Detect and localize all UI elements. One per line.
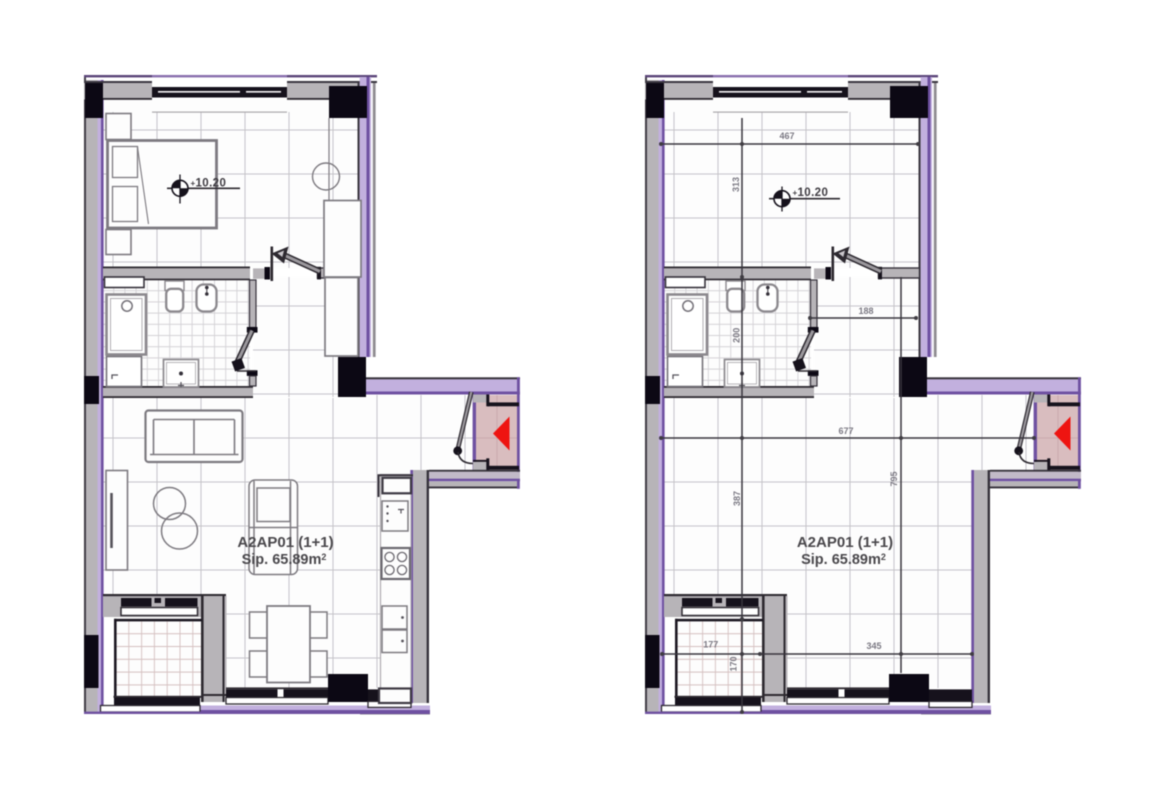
svg-text:Sip. 65.89m2: Sip. 65.89m2 <box>801 552 886 568</box>
svg-text:795: 795 <box>889 471 899 486</box>
svg-text:10.20: 10.20 <box>196 178 227 190</box>
svg-text:177: 177 <box>703 640 718 650</box>
svg-text:170: 170 <box>729 656 739 671</box>
svg-text:188: 188 <box>858 306 873 316</box>
svg-text:200: 200 <box>732 328 742 343</box>
svg-text:467: 467 <box>779 131 794 141</box>
svg-text:677: 677 <box>838 426 853 436</box>
svg-text:10.20: 10.20 <box>798 187 829 199</box>
svg-text:A2AP01 (1+1): A2AP01 (1+1) <box>797 534 893 551</box>
svg-text:Sip. 65.89m2: Sip. 65.89m2 <box>242 552 327 568</box>
svg-text:A2AP01 (1+1): A2AP01 (1+1) <box>237 534 333 551</box>
svg-text:387: 387 <box>732 491 742 506</box>
svg-text:345: 345 <box>866 641 881 651</box>
svg-text:313: 313 <box>731 177 741 192</box>
